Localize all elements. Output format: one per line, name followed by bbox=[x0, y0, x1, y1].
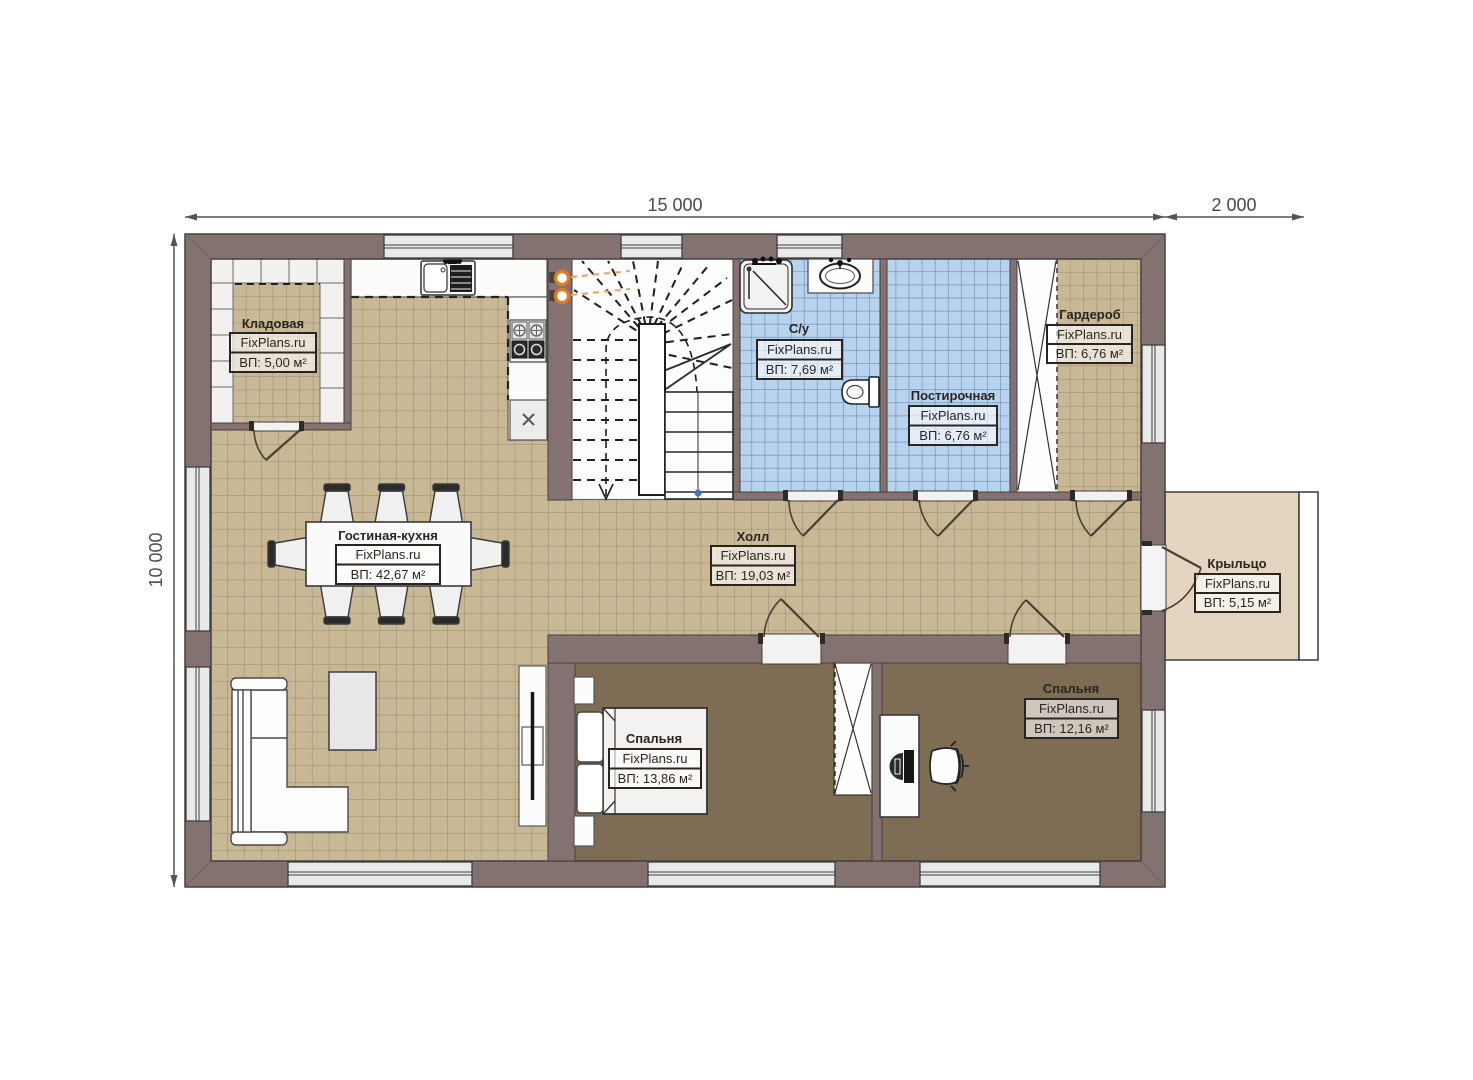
svg-text:FixPlans.ru: FixPlans.ru bbox=[1205, 576, 1270, 591]
svg-text:Крыльцо: Крыльцо bbox=[1207, 556, 1266, 571]
svg-text:15 000: 15 000 bbox=[647, 195, 702, 215]
svg-text:ВП: 6,76 м²: ВП: 6,76 м² bbox=[919, 428, 987, 443]
svg-text:FixPlans.ru: FixPlans.ru bbox=[920, 408, 985, 423]
svg-text:FixPlans.ru: FixPlans.ru bbox=[1057, 327, 1122, 342]
svg-text:2 000: 2 000 bbox=[1211, 195, 1256, 215]
svg-text:10 000: 10 000 bbox=[146, 532, 166, 587]
svg-text:ВП: 7,69 м²: ВП: 7,69 м² bbox=[766, 362, 834, 377]
svg-text:С/у: С/у bbox=[789, 321, 810, 336]
svg-text:ВП: 19,03 м²: ВП: 19,03 м² bbox=[716, 568, 791, 583]
svg-text:Холл: Холл bbox=[737, 529, 770, 544]
svg-text:ВП: 42,67 м²: ВП: 42,67 м² bbox=[351, 567, 426, 582]
svg-text:ВП: 13,86 м²: ВП: 13,86 м² bbox=[618, 771, 693, 786]
svg-text:FixPlans.ru: FixPlans.ru bbox=[622, 751, 687, 766]
svg-text:Спальня: Спальня bbox=[1043, 681, 1099, 696]
svg-text:FixPlans.ru: FixPlans.ru bbox=[720, 548, 785, 563]
svg-text:ВП: 12,16 м²: ВП: 12,16 м² bbox=[1034, 721, 1109, 736]
svg-text:ВП: 6,76 м²: ВП: 6,76 м² bbox=[1056, 346, 1124, 361]
svg-text:FixPlans.ru: FixPlans.ru bbox=[767, 342, 832, 357]
svg-text:ВП: 5,00 м²: ВП: 5,00 м² bbox=[239, 355, 307, 370]
svg-text:FixPlans.ru: FixPlans.ru bbox=[1039, 701, 1104, 716]
svg-text:ВП: 5,15 м²: ВП: 5,15 м² bbox=[1204, 595, 1272, 610]
svg-text:Гардероб: Гардероб bbox=[1059, 307, 1120, 322]
svg-text:Спальня: Спальня bbox=[626, 731, 682, 746]
svg-text:Кладовая: Кладовая bbox=[242, 316, 304, 331]
svg-text:FixPlans.ru: FixPlans.ru bbox=[240, 335, 305, 350]
svg-text:Постирочная: Постирочная bbox=[911, 388, 995, 403]
svg-text:FixPlans.ru: FixPlans.ru bbox=[355, 547, 420, 562]
svg-text:Гостиная-кухня: Гостиная-кухня bbox=[338, 528, 438, 543]
